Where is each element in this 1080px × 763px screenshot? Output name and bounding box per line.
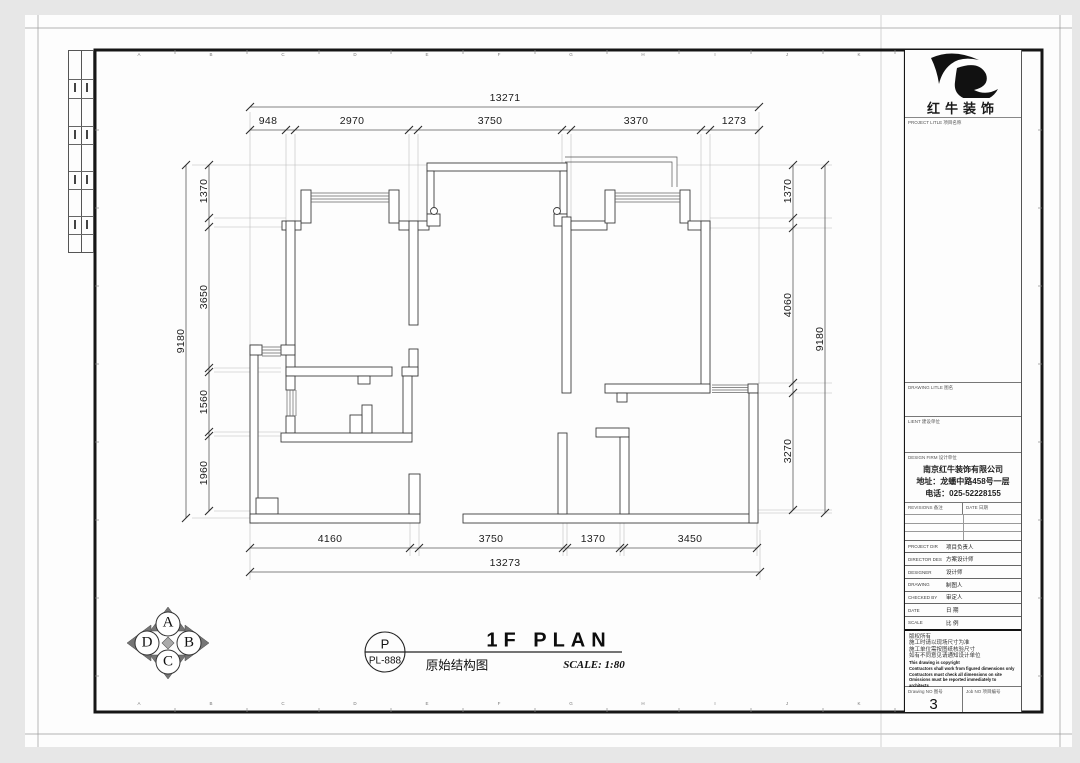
client-area xyxy=(905,425,1021,452)
door-hinge-icons xyxy=(431,208,561,215)
drawing-title-label: DRAWING LITLE 图名 xyxy=(905,382,1021,391)
strip-divider xyxy=(81,51,82,252)
compass-west-label: D xyxy=(142,635,153,652)
grid-reference-letter: D xyxy=(353,52,356,57)
grid-reference-letter: F xyxy=(498,52,501,57)
revision-row xyxy=(905,531,1021,540)
plan-scale: SCALE: 1:80 xyxy=(563,659,624,671)
notes-block: 版权所有 施工时请以现场尺寸为准 施工单位需按图纸核验尺寸 如有不同意见请通知设… xyxy=(905,629,1021,686)
revision-row xyxy=(905,523,1021,532)
grid-reference-letter: A xyxy=(137,52,140,57)
personnel-row: CHECKED BY审定人 xyxy=(905,591,1021,604)
revision-row xyxy=(905,514,1021,523)
dimension-label: 1560 xyxy=(198,390,210,415)
compass-south-label: C xyxy=(163,654,173,671)
project-title-area xyxy=(905,127,1021,382)
drawing-sheet: 1327194829703750337012739180137036501560… xyxy=(0,0,1080,763)
tag-code: PL-888 xyxy=(369,656,401,667)
grid-reference-letter: A xyxy=(137,701,140,706)
brand-section: 红牛装饰 xyxy=(905,50,1021,118)
grid-reference-letter: I xyxy=(714,701,715,706)
dimension-label: 3270 xyxy=(782,439,794,464)
dimension-label: 3750 xyxy=(479,533,504,545)
dimension-label: 1273 xyxy=(722,115,747,127)
dimension-label: 1960 xyxy=(198,461,210,486)
dimension-label: 13271 xyxy=(490,92,521,104)
dimension-label: 4060 xyxy=(782,293,794,318)
dimension-label: 9180 xyxy=(175,329,187,354)
drawing-title-area xyxy=(905,391,1021,416)
company-name: 南京红牛装饰有限公司 xyxy=(905,464,1021,476)
grid-reference-letter: C xyxy=(281,52,284,57)
personnel-row: PROJECT DIR项目负责人 xyxy=(905,540,1021,553)
personnel-row: SCALE比 例 xyxy=(905,616,1021,629)
grid-reference-letter: K xyxy=(857,701,860,706)
dimension-label: 9180 xyxy=(814,327,826,352)
number-row: Drawing NO 图号 3 Job NO 项目编号 xyxy=(905,686,1021,712)
client-label: LIENT 建设单位 xyxy=(905,416,1021,425)
grid-reference-letter: C xyxy=(281,701,284,706)
plan-title: 1F PLAN xyxy=(486,630,611,653)
red-bull-logo-icon xyxy=(927,52,999,98)
dimension-label: 3750 xyxy=(478,115,503,127)
tag-letter: P xyxy=(381,637,390,652)
dimension-label: 3650 xyxy=(198,285,210,310)
ledge-lines xyxy=(565,157,677,187)
personnel-row: DIRECTOR DES方案设计师 xyxy=(905,552,1021,565)
personnel-row: DESIGNER设计师 xyxy=(905,565,1021,578)
revisions-label: REVISIONS 备注 xyxy=(905,503,963,514)
grid-reference-letter: J xyxy=(786,52,788,57)
grid-reference-letter: I xyxy=(714,52,715,57)
grid-reference-letter: G xyxy=(569,701,573,706)
revisions-header: REVISIONS 备注 DATE 日期 xyxy=(905,502,1021,514)
company-address: 地址：龙蟠中路458号一层 xyxy=(905,476,1021,488)
personnel-row: DATE日 期 xyxy=(905,603,1021,616)
dimension-label: 1370 xyxy=(581,533,606,545)
job-no-label: Job NO 项目编号 xyxy=(963,687,1021,695)
dimension-label: 3370 xyxy=(624,115,649,127)
drawing-no-label: Drawing NO 图号 xyxy=(905,687,962,695)
title-block: 红牛装饰 PROJECT LITLE 项目名称 DRAWING LITLE 图名… xyxy=(905,50,1022,712)
revision-date-label: DATE 日期 xyxy=(963,503,1021,514)
company-phone: 电话：025-52228155 xyxy=(905,488,1021,500)
grid-reference-letter: B xyxy=(209,701,212,706)
brand-name: 红牛装饰 xyxy=(905,98,1021,117)
grid-reference-letter: B xyxy=(209,52,212,57)
dimension-label: 4160 xyxy=(318,533,343,545)
grid-reference-letter: H xyxy=(641,52,644,57)
project-title-label: PROJECT LITLE 项目名称 xyxy=(905,118,1021,127)
dimension-label: 13273 xyxy=(490,557,521,569)
drawing-no-cell: Drawing NO 图号 3 xyxy=(905,687,963,712)
dimension-label: 1370 xyxy=(782,179,794,204)
design-firm-label: DESIGN FIRM 设计单位 xyxy=(905,452,1021,461)
compass-east-label: B xyxy=(184,635,194,652)
plan-subtitle: 原始结构图 xyxy=(426,655,489,674)
grid-reference-letter: G xyxy=(569,52,573,57)
registration-strip xyxy=(68,50,94,253)
grid-reference-letter: E xyxy=(425,701,428,706)
dimension-label: 2970 xyxy=(340,115,365,127)
grid-reference-letter: E xyxy=(425,52,428,57)
dimension-label: 948 xyxy=(259,115,277,127)
grid-reference-letter: F xyxy=(498,701,501,706)
compass-north-label: A xyxy=(163,615,174,632)
job-no-cell: Job NO 项目编号 xyxy=(963,687,1021,712)
drawing-no-value: 3 xyxy=(905,696,962,713)
company-info: 南京红牛装饰有限公司 地址：龙蟠中路458号一层 电话：025-52228155 xyxy=(905,461,1021,502)
window-symbols xyxy=(262,193,748,416)
grid-reference-letter: D xyxy=(353,701,356,706)
personnel-row: DRAWING制图人 xyxy=(905,578,1021,591)
dimension-label: 3450 xyxy=(678,533,703,545)
grid-reference-letter: H xyxy=(641,701,644,706)
plan-walls xyxy=(250,163,758,523)
dimension-label: 1370 xyxy=(198,179,210,204)
grid-reference-letter: K xyxy=(857,52,860,57)
grid-reference-letter: J xyxy=(786,701,788,706)
